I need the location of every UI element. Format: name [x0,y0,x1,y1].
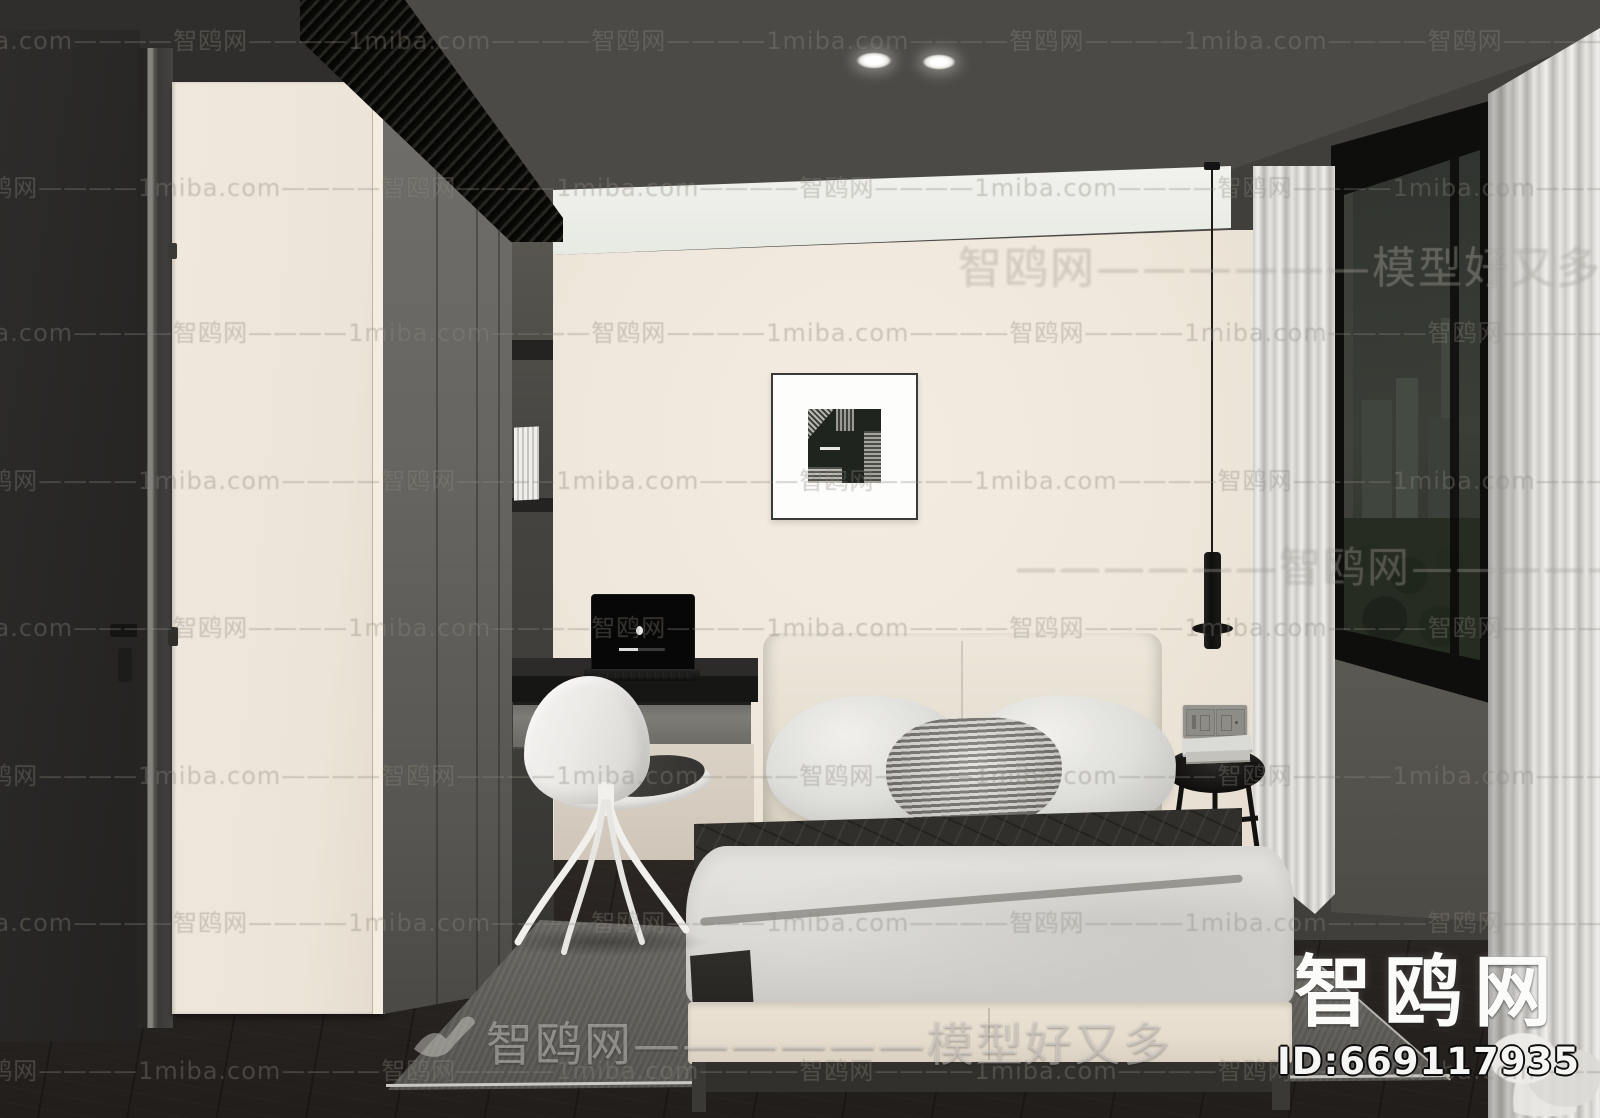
door-latch-top [168,243,177,259]
shelf [512,340,554,360]
open-cream-door [172,82,385,1014]
switch-module [1216,709,1245,736]
bed-frame [696,1062,1288,1094]
window-mullion [1450,150,1459,662]
door-latch [168,627,178,646]
bed-base [688,1002,1292,1064]
dark-door-leaf [0,30,140,1042]
door-lock-plate [118,648,132,682]
loading-fill [619,648,638,651]
window-city-view [1344,150,1480,662]
bed-leg [692,1062,706,1112]
light-switch-panel [1183,705,1247,738]
wardrobe-seam [436,92,438,1018]
striped-accent-pillow [885,716,1063,829]
city-building [1396,378,1418,520]
art-texture [820,447,840,450]
wardrobe-panels [383,92,515,1018]
downlight [922,54,956,70]
book [1186,750,1250,764]
white-duvet [686,846,1294,1008]
art-texture [808,467,842,483]
bedroom-render: 1miba.com————智鸥网————1miba.com————智鸥网————… [0,0,1600,1118]
wardrobe-seam [476,92,478,1018]
shelf-books [514,426,539,500]
chair-legs [500,780,720,965]
abstract-art [808,409,881,483]
pendant-disc [1192,623,1233,634]
pendant-lamp [1204,552,1221,649]
pendant-ceiling-cap [1204,162,1220,170]
downlight [856,52,892,69]
door-frame [137,48,173,1028]
site-logo: 智鸥网 [1294,930,1564,1042]
model-id: ID:669117935 [1277,1040,1580,1083]
art-texture [836,409,854,431]
switch-module [1186,709,1215,736]
framed-artwork [771,373,918,520]
city-building [1362,400,1392,520]
laptop-screen [591,594,695,672]
laptop-keyboard [592,671,692,678]
laptop-loading-bar [619,648,665,651]
apple-logo-icon [636,626,643,635]
pendant-cord [1211,164,1213,554]
